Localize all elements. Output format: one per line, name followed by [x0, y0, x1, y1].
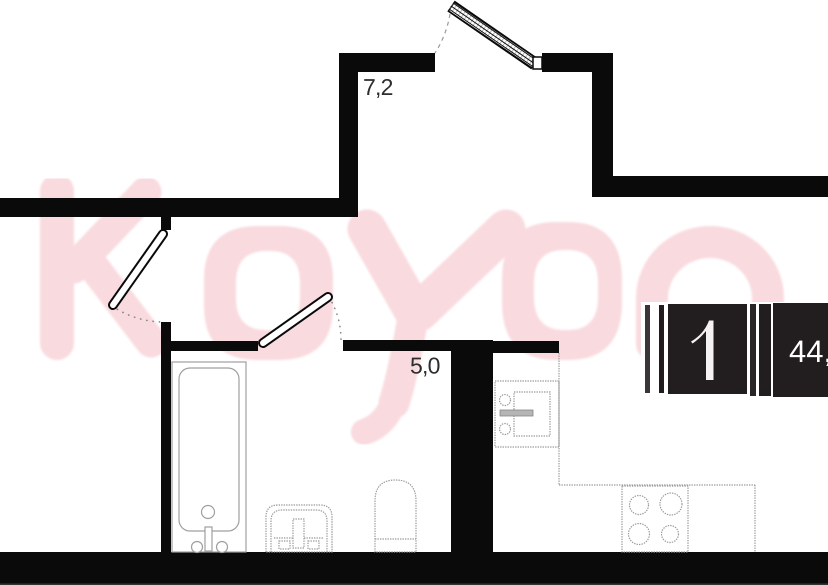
svg-text:5,0: 5,0	[410, 353, 440, 379]
svg-text:44,9: 44,9	[789, 334, 828, 369]
svg-text:7,2: 7,2	[363, 74, 393, 100]
